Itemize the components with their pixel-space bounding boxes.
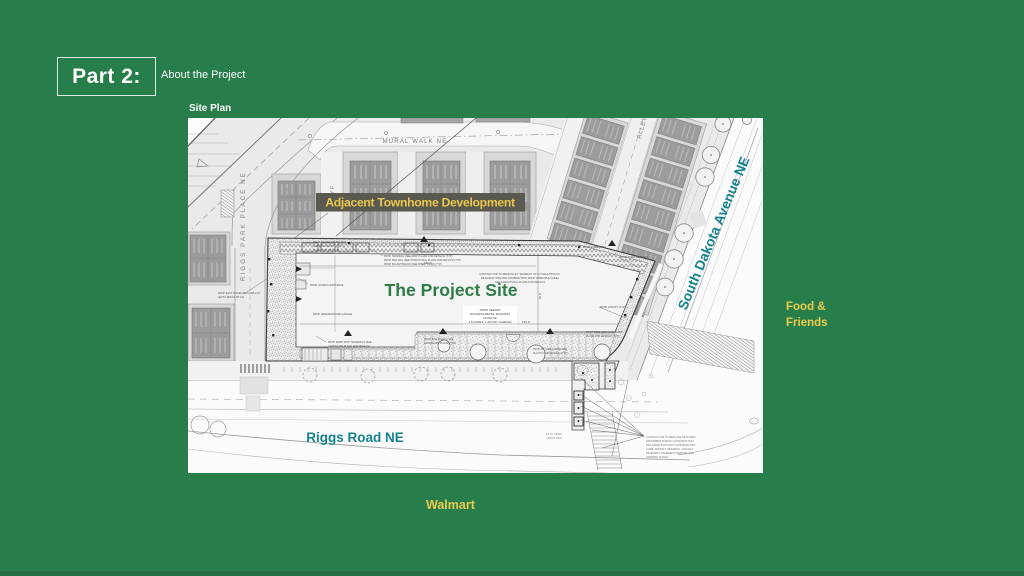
svg-text:PROP TRANSFORMER PAD: PROP TRANSFORMER PAD (313, 241, 346, 244)
svg-text:(EXIST SSA): (EXIST SSA) (547, 436, 562, 440)
svg-text:PROP UNDERGROUND GARAGE: PROP UNDERGROUND GARAGE (313, 313, 352, 316)
svg-text:Adjacent Townhome Development: Adjacent Townhome Development (325, 196, 515, 210)
svg-text:PLANS FOR DETAILS: PLANS FOR DETAILS (313, 249, 338, 252)
svg-text:INCLUDING BUS STOP CONCRETE PA: INCLUDING BUS STOP CONCRETE PAD, (646, 443, 696, 447)
svg-text:PROP CURB RAMP: PROP CURB RAMP (583, 246, 606, 249)
svg-text:DISTURBED DURING CONSTRUCTION: DISTURBED DURING CONSTRUCTION (646, 439, 694, 443)
svg-text:PROP CANOPY (TYP): PROP CANOPY (TYP) (600, 306, 626, 309)
svg-text:The Project Site: The Project Site (385, 280, 518, 300)
svg-text:PROP CONC SIDEWALK: PROP CONC SIDEWALK (620, 256, 649, 259)
svg-text:PROP LOADING ENTRANCE: PROP LOADING ENTRANCE (310, 284, 344, 287)
svg-text:RIGGS PARK PLACE NE: RIGGS PARK PLACE NE (241, 171, 247, 281)
svg-text:Riggs Road NE: Riggs Road NE (306, 430, 404, 445)
svg-text:STRIPING IN RAD.: STRIPING IN RAD. (646, 455, 669, 459)
svg-text:(EXIST DETAIL SH.C1): (EXIST DETAIL SH.C1) (218, 296, 244, 299)
svg-text:PROP HANDRAIL (SEE ARCH PLANS: PROP HANDRAIL (SEE ARCH PLANS FOR DETAIL… (384, 255, 452, 258)
svg-text:EX 15' SDWK: EX 15' SDWK (546, 432, 562, 436)
svg-text:MURAL WALK NE: MURAL WALK NE (383, 139, 448, 145)
svg-text:CONTRACTOR TO REMOVE EX. SEGME: CONTRACTOR TO REMOVE EX. SEGMENT OF EX W… (479, 272, 560, 276)
svg-text:95.0': 95.0' (538, 292, 542, 299)
svg-text:PROP EAST STANDARD CURB CUT: PROP EAST STANDARD CURB CUT (218, 292, 261, 295)
svg-text:PROP PIT (SEE LANDSCAPE: PROP PIT (SEE LANDSCAPE (533, 348, 567, 351)
svg-text:PROP DVR RAIL (SEE STRUCTURAL: PROP DVR RAIL (SEE STRUCTURAL PLANS FOR … (384, 259, 461, 262)
svg-text:Y F: Y F (330, 185, 336, 194)
svg-text:PLANS FOR DETAILS) (TYP): PLANS FOR DETAILS) (TYP) (586, 335, 619, 338)
svg-text:PLANTS FOR DETAILS) (TYP): PLANTS FOR DETAILS) (TYP) (533, 352, 568, 355)
svg-text:PROP TREE (SEE LANDSCAPE: PROP TREE (SEE LANDSCAPE (586, 331, 623, 334)
svg-text:4 FLOORS, 1-STORY GARAGE: 4 FLOORS, 1-STORY GARAGE (468, 320, 511, 324)
svg-text:CURB, ASPHALT SIDEWALK, ASPHA: CURB, ASPHALT SIDEWALK, ASPHALT (646, 447, 694, 451)
svg-text:LANDSCAPE PLANS FOR DETAILS): LANDSCAPE PLANS FOR DETAILS) (328, 345, 370, 348)
svg-text:PROP RAMP WITH HANDRAILS (SEE: PROP RAMP WITH HANDRAILS (SEE (328, 341, 372, 344)
svg-text:PROP SPLASH BLOCK (SEE SHEET C: PROP SPLASH BLOCK (SEE SHEET C5.00) (TYP… (384, 263, 442, 266)
svg-text:LANDSCAPE PLANS) (TYP): LANDSCAPE PLANS) (TYP) (424, 342, 456, 345)
svg-text:PAVEMENT, PAVEMENT MARKING AND: PAVEMENT, PAVEMENT MARKING AND (646, 451, 694, 455)
svg-text:192.0': 192.0' (522, 320, 531, 324)
svg-text:PROP BIKE RACKS (SEE: PROP BIKE RACKS (SEE (424, 338, 454, 341)
svg-text:AND DRY UTILITY: AND DRY UTILITY (313, 245, 334, 248)
svg-text:CONTRACTOR TO REPLACE FEATURES: CONTRACTOR TO REPLACE FEATURES (646, 435, 696, 439)
